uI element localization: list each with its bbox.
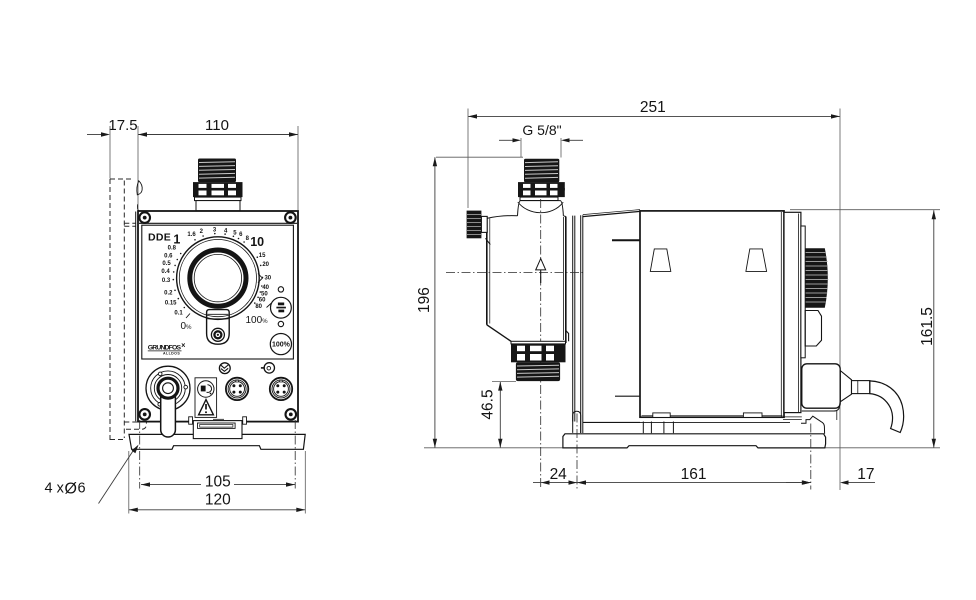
svg-text:15: 15 xyxy=(259,253,266,259)
svg-text:251: 251 xyxy=(640,99,666,116)
svg-text:120: 120 xyxy=(205,492,231,509)
svg-text:1: 1 xyxy=(173,233,180,247)
svg-text:Ø: Ø xyxy=(65,481,77,498)
svg-text:DDE: DDE xyxy=(148,232,171,244)
svg-text:60: 60 xyxy=(259,297,266,303)
svg-text:17: 17 xyxy=(857,466,874,483)
svg-text:110: 110 xyxy=(205,117,229,134)
svg-text:0.6: 0.6 xyxy=(164,254,173,260)
svg-text:1.6: 1.6 xyxy=(187,232,196,238)
svg-text:105: 105 xyxy=(205,474,231,491)
svg-text:0.1: 0.1 xyxy=(174,311,183,317)
svg-text:4 x: 4 x xyxy=(45,481,65,497)
svg-text:80: 80 xyxy=(255,304,262,310)
svg-text:0.2: 0.2 xyxy=(164,290,173,296)
svg-text:161: 161 xyxy=(681,466,707,483)
svg-text:30: 30 xyxy=(264,275,271,281)
svg-text:100%: 100% xyxy=(272,342,291,349)
svg-text:0.5: 0.5 xyxy=(162,261,171,267)
svg-text:20: 20 xyxy=(262,262,269,268)
svg-text:161.5: 161.5 xyxy=(919,307,936,346)
svg-text:0.15: 0.15 xyxy=(165,301,177,307)
svg-text:196: 196 xyxy=(416,287,433,313)
svg-text:10: 10 xyxy=(250,235,264,249)
svg-text:24: 24 xyxy=(550,466,568,483)
svg-text:ALLDOS: ALLDOS xyxy=(163,351,180,355)
svg-text:6: 6 xyxy=(78,481,86,497)
svg-text:40: 40 xyxy=(262,285,269,291)
svg-text:G 5/8": G 5/8" xyxy=(522,122,561,138)
svg-text:0.3: 0.3 xyxy=(162,278,171,284)
svg-text:46.5: 46.5 xyxy=(480,389,497,419)
svg-text:17.5: 17.5 xyxy=(108,117,137,134)
svg-text:0.4: 0.4 xyxy=(161,269,170,275)
